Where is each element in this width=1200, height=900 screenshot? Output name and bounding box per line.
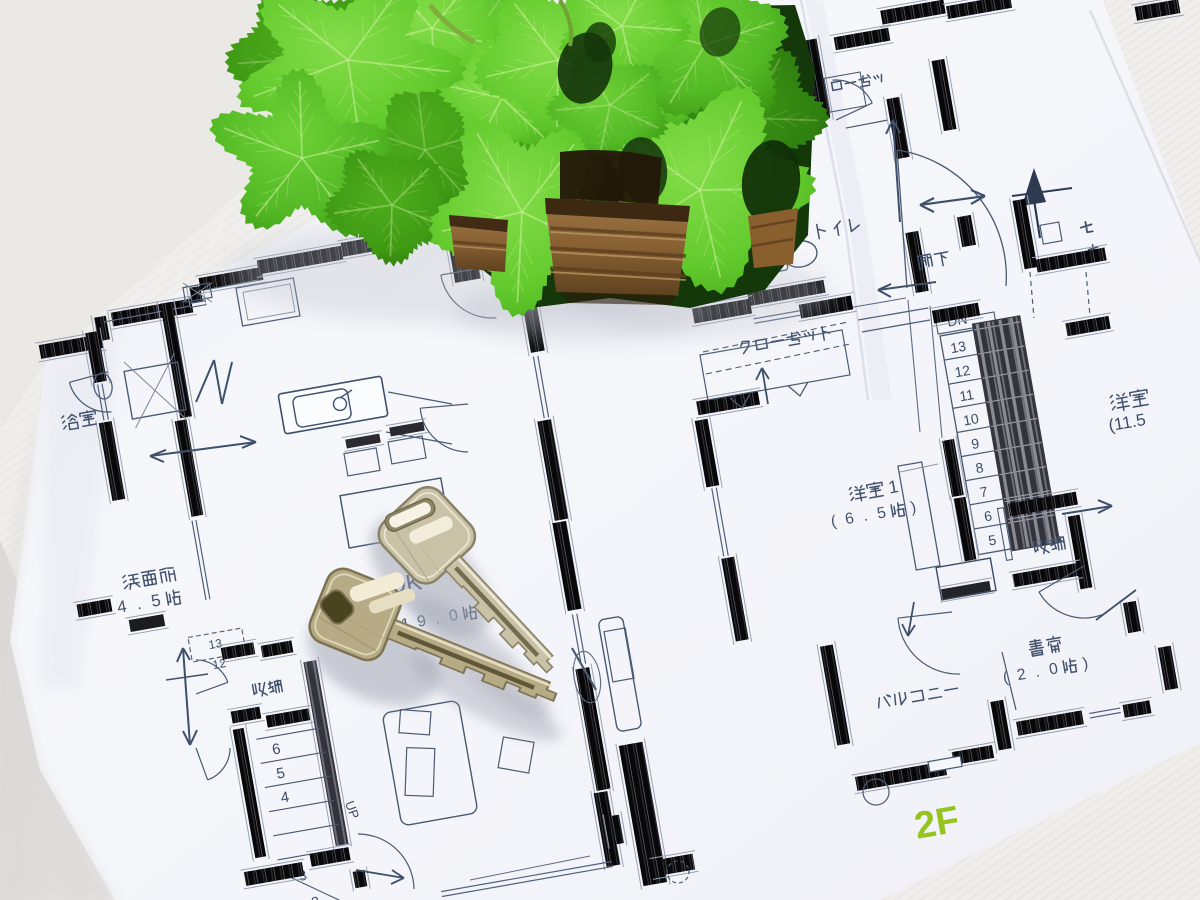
svg-text:12: 12 (953, 362, 971, 380)
svg-text:2F: 2F (911, 799, 962, 848)
svg-text:13: 13 (207, 636, 223, 652)
svg-text:13: 13 (949, 338, 967, 356)
svg-text:10: 10 (962, 410, 980, 428)
svg-text:11: 11 (958, 386, 975, 404)
